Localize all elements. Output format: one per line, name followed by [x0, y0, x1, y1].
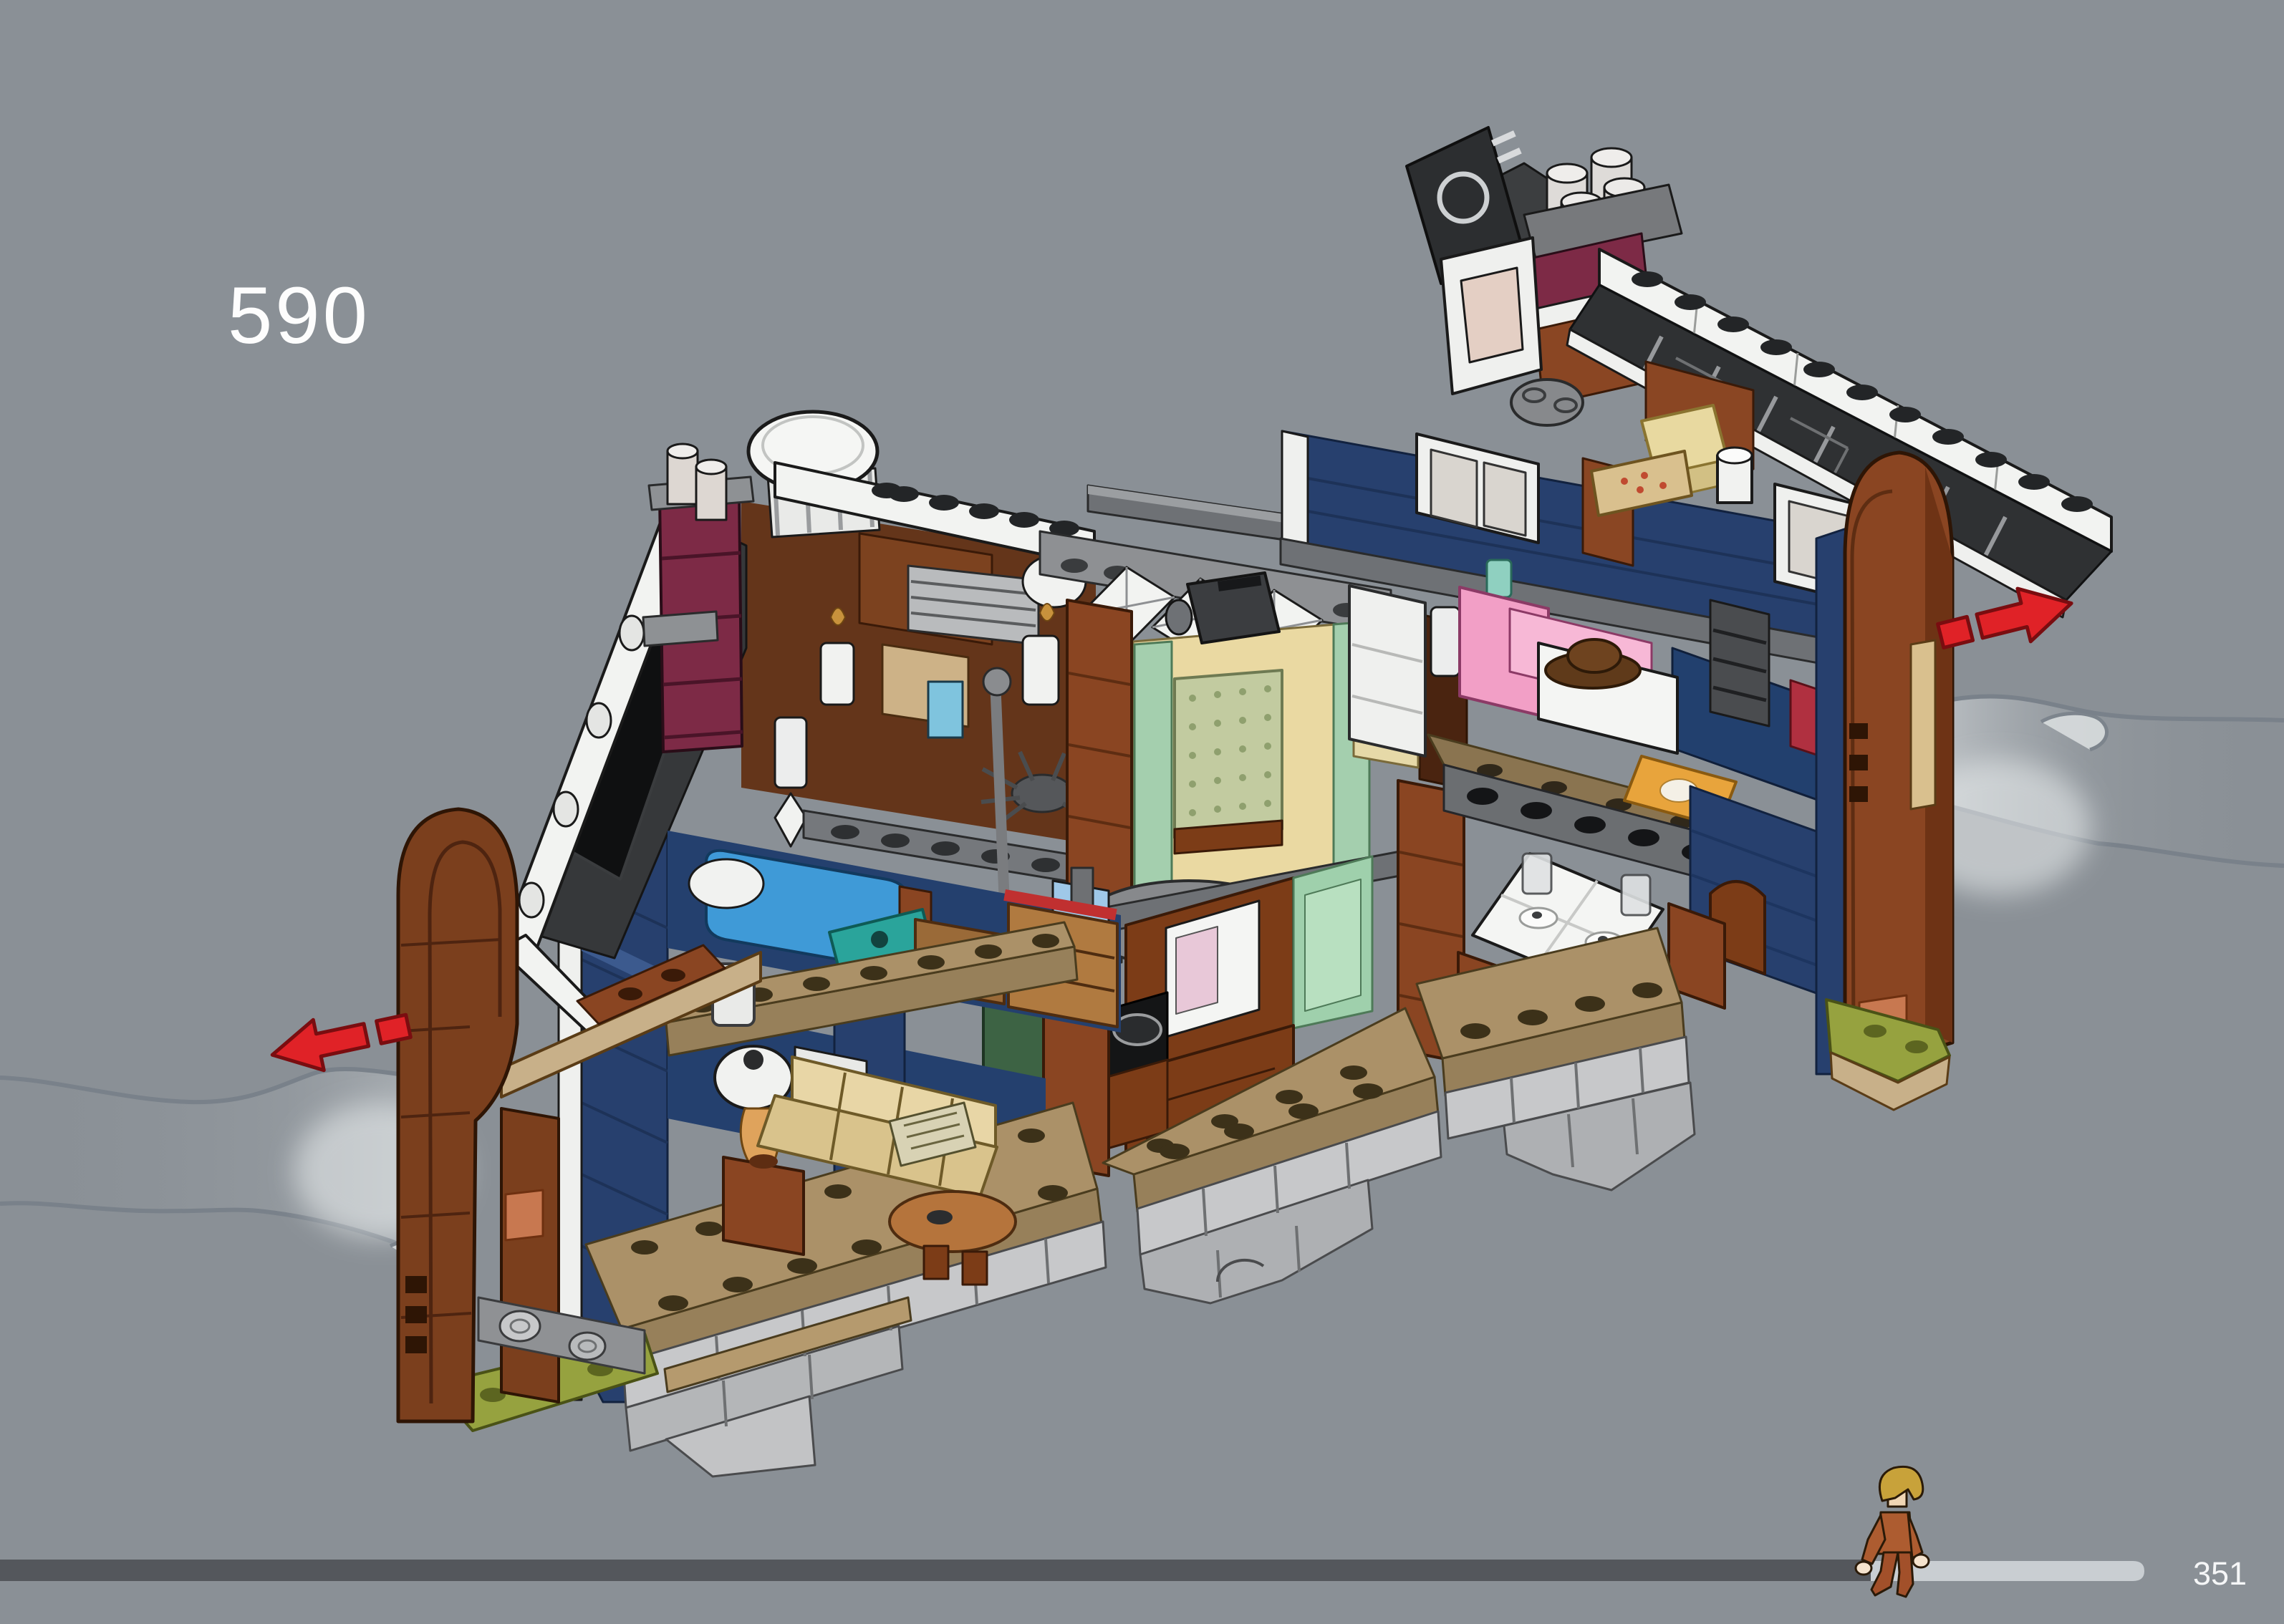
svg-text:351: 351: [2193, 1555, 2247, 1592]
svg-text:590: 590: [228, 271, 370, 360]
